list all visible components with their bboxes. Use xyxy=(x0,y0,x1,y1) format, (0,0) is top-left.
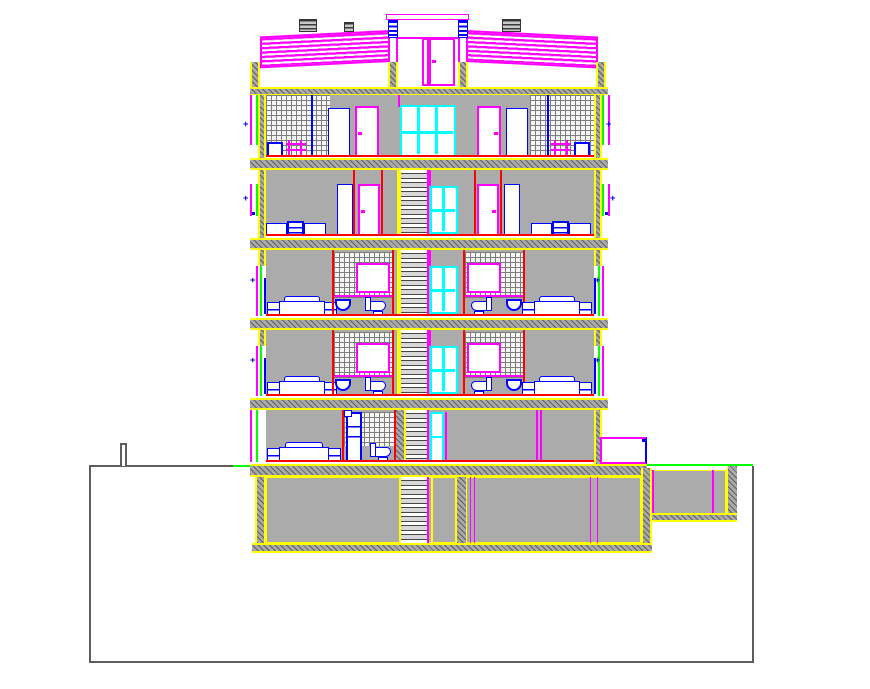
attic-wall-right xyxy=(594,95,602,158)
slab-3 xyxy=(250,238,608,250)
window-transom xyxy=(402,131,453,134)
bath-shelf xyxy=(344,410,352,417)
axis-mark: + xyxy=(243,122,248,129)
toilet-bowl xyxy=(471,381,487,391)
floor2-window-right xyxy=(594,346,604,396)
window-transom xyxy=(432,369,455,372)
window-frame xyxy=(598,346,600,396)
ground-line-right-vertical xyxy=(752,466,754,663)
partition-wall xyxy=(353,170,355,236)
site-post xyxy=(120,443,127,466)
groundfloor-floor-line xyxy=(266,460,594,462)
partition-wall xyxy=(392,250,394,316)
dormer-door-leaf-main xyxy=(429,38,455,86)
basement-bottom-slab xyxy=(252,543,652,553)
crawlspace-interior xyxy=(652,470,728,513)
stair-rail xyxy=(427,410,429,462)
bathroom2-left-mirror xyxy=(356,343,390,373)
ground-line-bottom xyxy=(89,661,754,663)
slab-ground-ceiling xyxy=(250,398,608,410)
wardrobe-right xyxy=(504,184,520,236)
partition-wall xyxy=(392,330,394,396)
dormer-pillar-left-cap xyxy=(388,20,398,38)
floor2-window-left xyxy=(256,346,266,396)
floor3-center-window xyxy=(430,266,458,314)
partition-wall xyxy=(381,170,383,236)
door-glass-divider xyxy=(432,436,442,438)
axis-mark: + xyxy=(610,196,615,203)
crawlspace-bottom xyxy=(652,513,737,522)
floor2-floor-line xyxy=(266,394,594,396)
floor4-door-right xyxy=(477,184,499,236)
basement-mid-wall xyxy=(457,477,467,543)
floor3-floor-line xyxy=(266,314,594,316)
bed-ground xyxy=(267,440,341,462)
floor4-side-window-right xyxy=(602,184,610,216)
eave-wall-left xyxy=(250,62,260,88)
ground-line-left-vertical xyxy=(89,465,91,663)
floor2-center-window xyxy=(430,346,458,394)
roof-slope-left xyxy=(260,30,390,68)
floor3-window-left xyxy=(256,266,266,316)
dormer-pillar-left xyxy=(388,38,398,62)
window-mark xyxy=(605,212,608,215)
floor4-center-window xyxy=(430,186,458,234)
axis-mark: + xyxy=(250,278,255,285)
mattress xyxy=(279,301,325,315)
window-frame xyxy=(260,346,262,396)
garage-partition xyxy=(536,410,538,462)
floor4-side-window-left xyxy=(250,184,258,216)
window-glass xyxy=(264,358,266,394)
window-transom xyxy=(432,209,455,212)
mattress xyxy=(534,381,580,395)
toilet-bowl xyxy=(370,301,386,311)
staircase-ground xyxy=(404,410,427,462)
groundfloor-window-left xyxy=(250,410,258,462)
ground-line-left xyxy=(89,465,233,467)
window-glass xyxy=(264,278,266,314)
slab-ground xyxy=(250,464,647,477)
attic-wall-left xyxy=(258,95,266,158)
dormer-pillar-right xyxy=(458,38,468,62)
bed-right xyxy=(522,294,592,316)
door-jamb xyxy=(445,412,447,462)
floor4-floor-line xyxy=(266,234,594,236)
roof-slope-right xyxy=(466,30,598,68)
axis-mark: + xyxy=(250,358,255,365)
floor4-wall-left xyxy=(258,170,266,238)
door-handle xyxy=(492,210,496,213)
table-shelf xyxy=(551,149,571,151)
door-handle xyxy=(494,132,498,135)
mattress xyxy=(279,381,325,395)
garage-partition xyxy=(540,410,542,462)
window-mark xyxy=(252,212,255,215)
window-connector xyxy=(429,250,431,266)
door-handle xyxy=(361,210,365,213)
window-frame xyxy=(260,266,262,316)
floor4-wall-right xyxy=(594,170,602,238)
attic-center-window xyxy=(400,105,456,157)
floor4-door-left xyxy=(358,184,380,236)
basement-interior xyxy=(266,477,641,543)
partition-wall xyxy=(500,170,502,236)
bathroom2-right-mirror xyxy=(467,343,501,373)
chimney-middle xyxy=(344,22,354,32)
attic-door-plain-right xyxy=(506,108,528,157)
bed-right xyxy=(522,374,592,396)
toilet-bowl xyxy=(370,381,386,391)
slab-4 xyxy=(250,158,608,170)
chimney-left xyxy=(299,19,317,32)
stair-wall xyxy=(396,410,404,462)
bathroom3-left-mirror xyxy=(356,263,390,293)
bathroom3-right-mirror xyxy=(467,263,501,293)
basement-partition xyxy=(470,477,475,543)
ground-glass-door xyxy=(430,412,444,462)
floor2-wall-stub-left xyxy=(258,330,266,346)
axis-mark: + xyxy=(606,122,611,129)
floor3-wall-stub-right xyxy=(594,250,602,266)
shower-column xyxy=(346,412,362,462)
attic-pipe-left xyxy=(311,95,313,156)
window-transom xyxy=(432,289,455,292)
window-connector xyxy=(429,330,431,346)
axis-mark: + xyxy=(595,358,600,365)
attic-pipe-right xyxy=(547,95,549,156)
planter-mark xyxy=(642,439,645,442)
mattress xyxy=(279,447,329,461)
dormer-pillar-right-cap xyxy=(458,20,468,38)
eave-wall-right xyxy=(596,62,606,88)
floor3-wall-stub-left xyxy=(258,250,266,266)
mattress xyxy=(534,301,580,315)
axis-mark: + xyxy=(595,278,600,285)
door-handle xyxy=(432,60,436,63)
crawlspace-edge xyxy=(652,470,654,513)
staircase-floor3 xyxy=(399,250,427,316)
dormer-pillar-right-base xyxy=(458,62,468,88)
staircase-floor2 xyxy=(399,330,427,396)
cellar-edge xyxy=(431,477,433,543)
dormer-door-leaf-narrow xyxy=(422,38,429,86)
floor3-window-right xyxy=(594,266,604,316)
table-shelf xyxy=(286,149,306,151)
planter-box xyxy=(600,437,647,464)
window-connector xyxy=(429,170,431,186)
basement-partition xyxy=(590,477,598,543)
attic-door-plain-left xyxy=(328,108,350,157)
axis-mark: + xyxy=(243,196,248,203)
section-drawing-canvas: + + + + xyxy=(0,0,870,689)
toilet-bowl xyxy=(375,447,391,457)
stair-rail xyxy=(427,477,429,543)
basement-wall-left xyxy=(255,477,266,543)
crawlspace-partition xyxy=(712,470,714,513)
staircase-basement xyxy=(399,477,427,543)
dormer-pillar-left-base xyxy=(388,62,398,88)
attic-floor-line xyxy=(266,155,594,157)
toilet-bowl xyxy=(471,301,487,311)
wardrobe-left xyxy=(337,184,353,236)
staircase-floor4 xyxy=(399,170,427,236)
attic-door-right xyxy=(477,106,501,157)
attic-door-left xyxy=(355,106,379,157)
slab-2 xyxy=(250,318,608,330)
window-frame xyxy=(598,266,600,316)
basement-wall-right xyxy=(641,468,652,543)
bed-left xyxy=(267,374,337,396)
door-handle xyxy=(358,132,362,135)
attic-side-window-left xyxy=(250,95,258,145)
partition-wall xyxy=(474,170,476,236)
floor2-wall-stub-right xyxy=(594,330,602,346)
chimney-right xyxy=(502,19,521,32)
bed-left xyxy=(267,294,337,316)
